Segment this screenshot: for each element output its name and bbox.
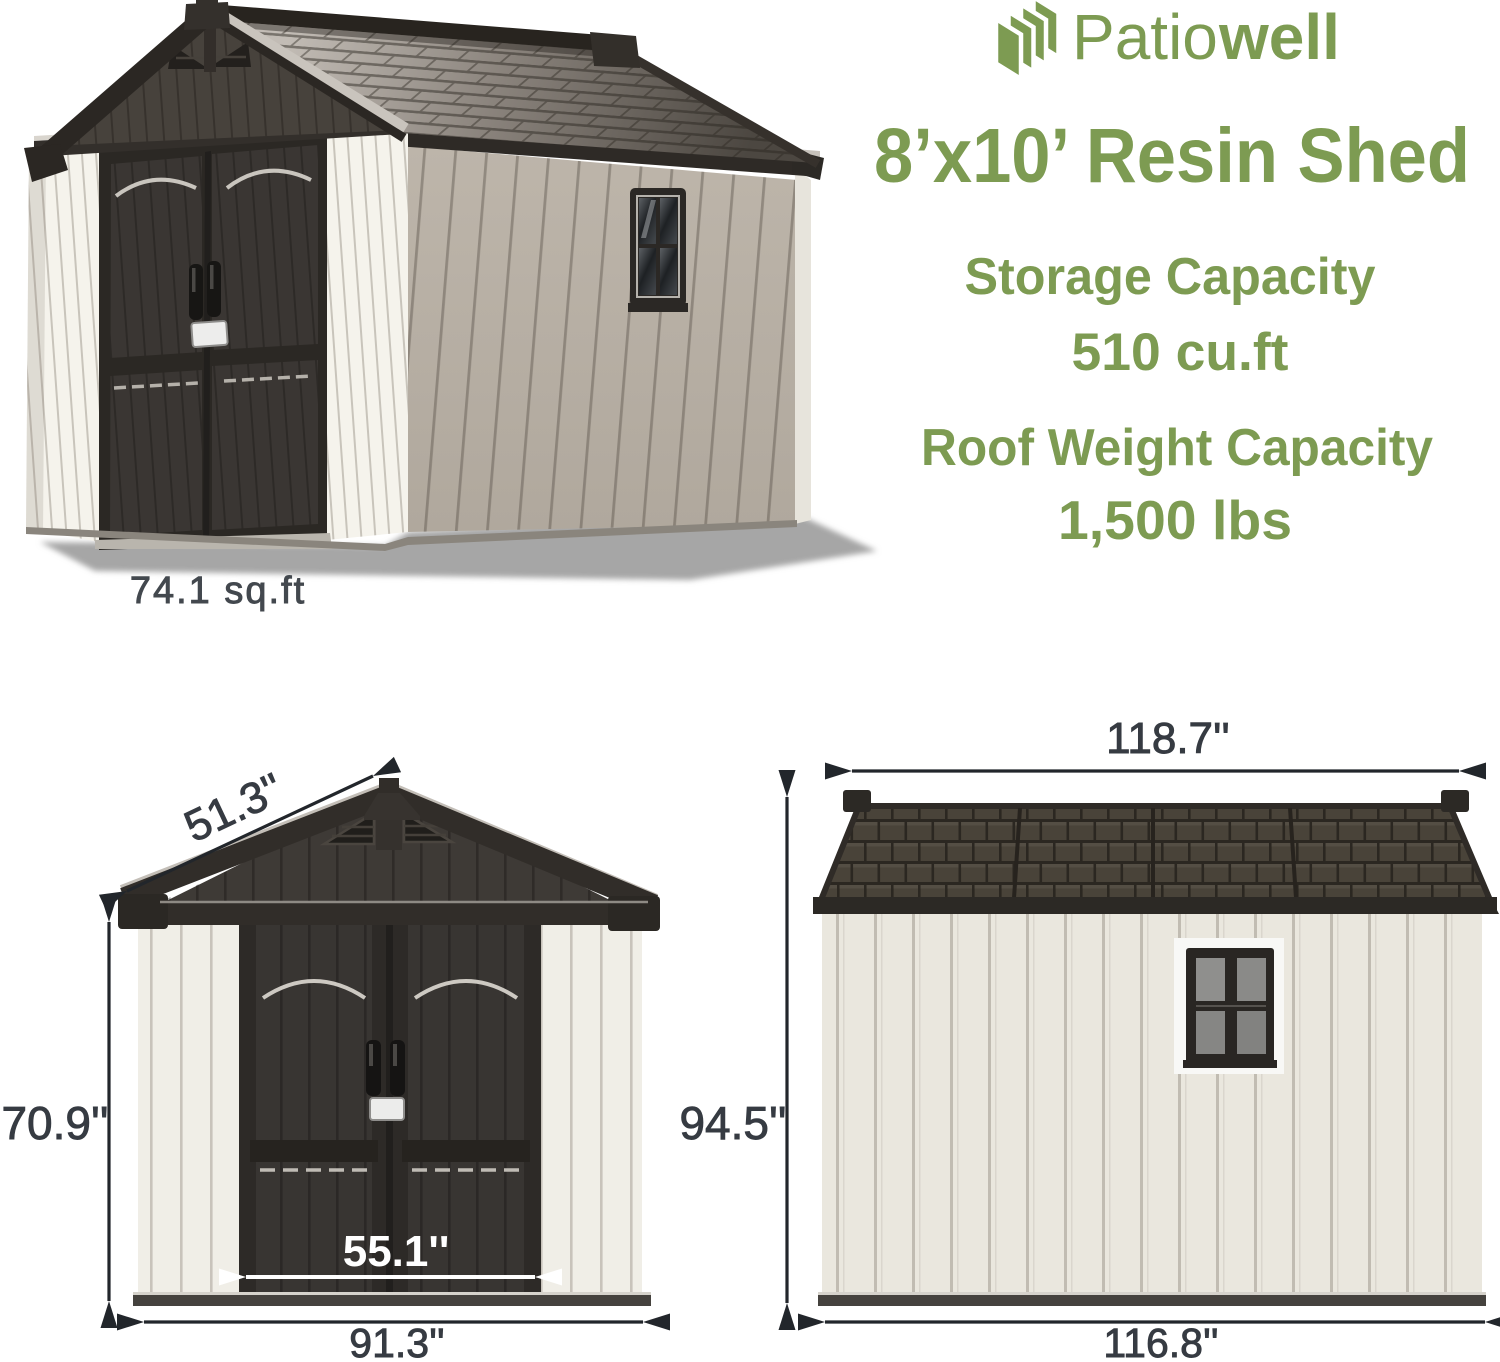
svg-text:74.1 sq.ft: 74.1 sq.ft — [130, 570, 306, 612]
svg-text:118.7'': 118.7'' — [1106, 714, 1230, 763]
svg-text:well: well — [1218, 1, 1340, 73]
svg-text:8’x10’ Resin Shed: 8’x10’ Resin Shed — [874, 113, 1470, 199]
svg-text:94.5'': 94.5'' — [679, 1097, 786, 1149]
svg-text:Patio: Patio — [1072, 1, 1218, 73]
svg-text:70.9'': 70.9'' — [1, 1097, 108, 1149]
svg-text:55.1'': 55.1'' — [343, 1227, 450, 1276]
svg-text:510 cu.ft: 510 cu.ft — [1072, 323, 1289, 382]
svg-text:116.8'': 116.8'' — [1103, 1320, 1218, 1362]
svg-text:Storage Capacity: Storage Capacity — [965, 248, 1376, 306]
svg-text:91.3'': 91.3'' — [349, 1320, 444, 1362]
svg-text:1,500 lbs: 1,500 lbs — [1058, 489, 1292, 551]
svg-text:Roof Weight Capacity: Roof Weight Capacity — [921, 419, 1433, 477]
